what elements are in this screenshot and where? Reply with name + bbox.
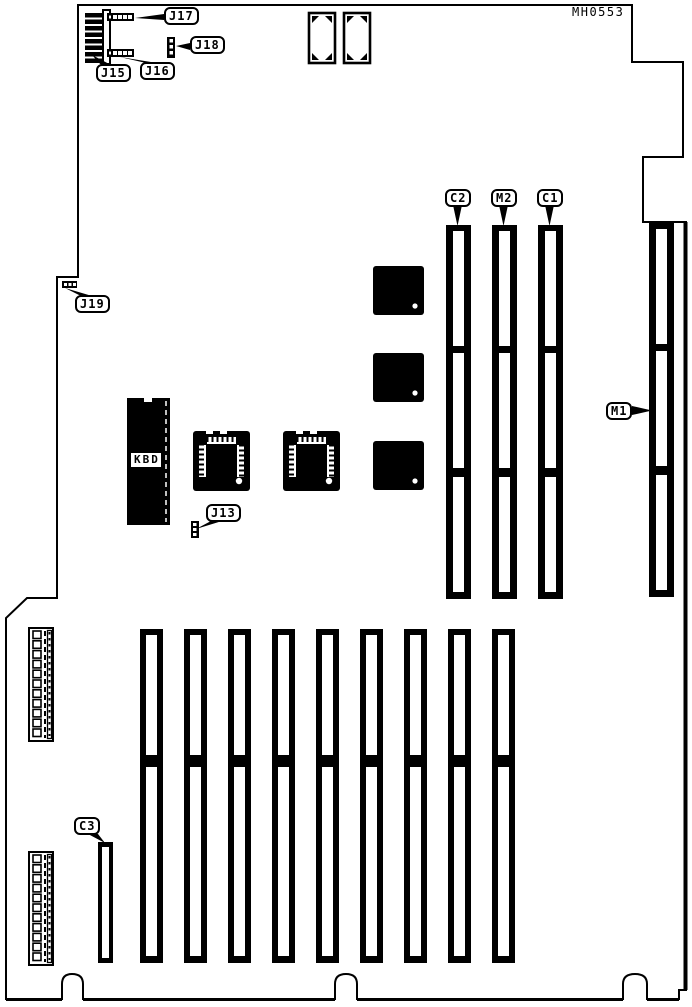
callout-j13: J13 bbox=[206, 504, 241, 522]
slot-exp-7 bbox=[404, 629, 427, 963]
slot-c2 bbox=[446, 225, 471, 599]
connector-j17 bbox=[107, 13, 134, 21]
slot-exp-1 bbox=[140, 629, 163, 963]
tail-m2 bbox=[499, 205, 508, 226]
chip-qfp-3 bbox=[373, 441, 424, 490]
part-number: MH0553 bbox=[572, 6, 624, 19]
edge-header-upper bbox=[29, 628, 53, 741]
slot-exp-2 bbox=[184, 629, 207, 963]
slot-exp-8 bbox=[448, 629, 471, 963]
chip-plcc-2 bbox=[283, 431, 340, 491]
tail-c2 bbox=[453, 205, 462, 226]
connector-j16 bbox=[107, 49, 134, 57]
slot-c1 bbox=[538, 225, 563, 599]
component-rect-2 bbox=[344, 13, 370, 63]
slot-exp-5 bbox=[316, 629, 339, 963]
callout-j15: J15 bbox=[96, 64, 131, 82]
connector-j13 bbox=[191, 521, 199, 538]
slot-c3 bbox=[98, 842, 113, 963]
connector-j15 bbox=[85, 10, 110, 64]
callout-j19: J19 bbox=[75, 295, 110, 313]
callout-m1: M1 bbox=[606, 402, 632, 420]
tail-c1 bbox=[545, 205, 554, 226]
chip-plcc-1 bbox=[193, 431, 250, 491]
callout-c2: C2 bbox=[445, 189, 471, 207]
slot-exp-4 bbox=[272, 629, 295, 963]
chip-qfp-1 bbox=[373, 266, 424, 315]
slot-m1 bbox=[649, 223, 674, 597]
board-geometry bbox=[0, 0, 692, 1007]
tail-j17 bbox=[135, 14, 164, 20]
tail-j18 bbox=[176, 43, 190, 50]
component-rect-1 bbox=[309, 13, 335, 63]
slot-exp-9 bbox=[492, 629, 515, 963]
slot-m2 bbox=[492, 225, 517, 599]
tail-c3 bbox=[88, 834, 105, 843]
connector-j19 bbox=[62, 281, 77, 288]
slot-exp-3 bbox=[228, 629, 251, 963]
callout-j18: J18 bbox=[190, 36, 225, 54]
board-diagram: MH0553 J17 J18 J15 J16 J19 J13 C2 M2 C1 … bbox=[0, 0, 692, 1007]
callout-c1: C1 bbox=[537, 189, 563, 207]
callout-j17: J17 bbox=[164, 7, 199, 25]
chip-kbd-label: KBD bbox=[131, 453, 161, 467]
slot-exp-6 bbox=[360, 629, 383, 963]
chip-qfp-2 bbox=[373, 353, 424, 402]
connector-j18 bbox=[167, 37, 175, 58]
callout-j16: J16 bbox=[140, 62, 175, 80]
callout-m2: M2 bbox=[491, 189, 517, 207]
tail-j13 bbox=[196, 521, 222, 529]
edge-header-lower bbox=[29, 852, 53, 965]
callout-c3: C3 bbox=[74, 817, 100, 835]
